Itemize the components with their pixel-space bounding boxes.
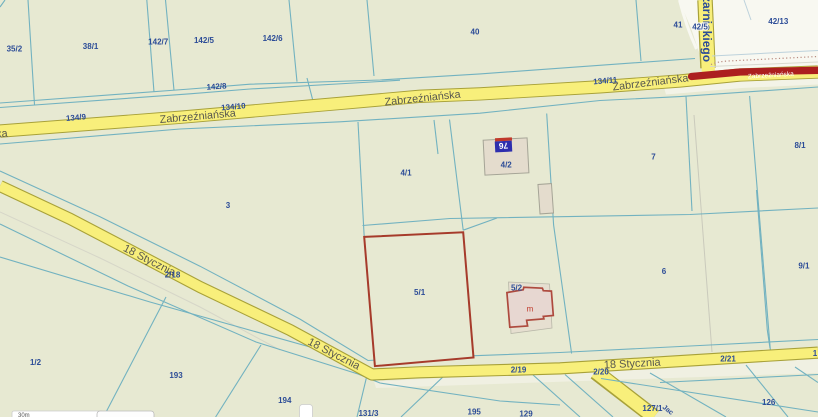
- svg-text:4/2: 4/2: [501, 160, 513, 169]
- svg-text:2/19: 2/19: [511, 365, 527, 374]
- svg-text:35/2: 35/2: [7, 45, 23, 54]
- svg-text:7: 7: [651, 153, 656, 162]
- svg-text:8/1: 8/1: [794, 141, 806, 150]
- svg-text:2/18: 2/18: [165, 271, 181, 280]
- svg-text:38/1: 38/1: [83, 42, 99, 51]
- svg-text:134/9: 134/9: [66, 112, 87, 123]
- svg-text:127/1: 127/1: [642, 404, 663, 413]
- svg-text:9/1: 9/1: [798, 261, 810, 270]
- svg-text:194: 194: [278, 396, 292, 405]
- svg-text:195: 195: [468, 407, 482, 416]
- svg-text:1/2: 1/2: [30, 358, 42, 367]
- svg-text:142/6: 142/6: [263, 34, 284, 43]
- svg-text:2/21: 2/21: [720, 354, 736, 363]
- svg-text:3: 3: [226, 201, 231, 210]
- svg-text:76: 76: [498, 141, 508, 151]
- svg-text:131/3: 131/3: [358, 409, 379, 417]
- svg-text:4/1: 4/1: [400, 168, 412, 177]
- svg-text:142/5: 142/5: [194, 36, 215, 45]
- svg-text:142/8: 142/8: [206, 81, 227, 91]
- svg-text:6: 6: [662, 267, 667, 276]
- svg-text:129: 129: [519, 410, 533, 417]
- svg-text:5/1: 5/1: [414, 288, 426, 297]
- svg-text:2/20: 2/20: [593, 368, 609, 377]
- svg-text:193: 193: [169, 371, 183, 380]
- svg-text:m: m: [527, 305, 534, 314]
- svg-text:41: 41: [674, 20, 683, 29]
- svg-text:126: 126: [762, 398, 776, 407]
- svg-text:30m: 30m: [18, 413, 30, 417]
- svg-text:40: 40: [471, 28, 480, 37]
- svg-text:42/5: 42/5: [692, 23, 708, 32]
- svg-text:1: 1: [813, 349, 818, 358]
- svg-text:142/7: 142/7: [148, 38, 169, 47]
- svg-text:42/13: 42/13: [768, 17, 789, 26]
- svg-text:5/2: 5/2: [511, 284, 523, 293]
